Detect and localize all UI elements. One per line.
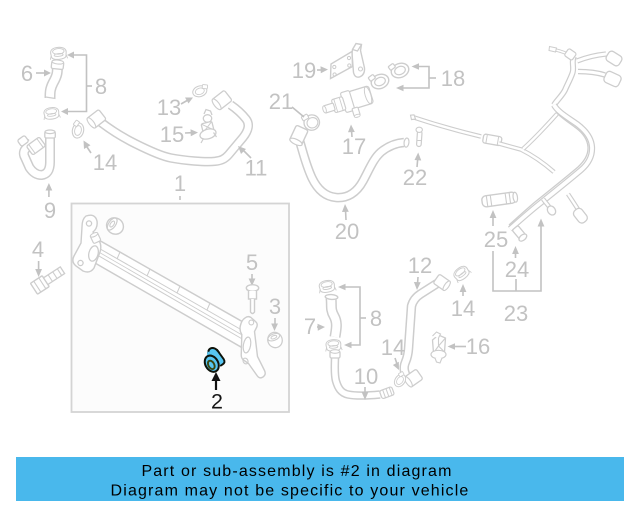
svg-text:10: 10 bbox=[354, 364, 378, 389]
svg-text:23: 23 bbox=[504, 301, 528, 326]
svg-text:7: 7 bbox=[304, 314, 316, 339]
svg-text:6: 6 bbox=[21, 61, 33, 86]
svg-text:11: 11 bbox=[245, 156, 268, 181]
svg-text:8: 8 bbox=[95, 74, 107, 99]
svg-text:16: 16 bbox=[466, 334, 490, 359]
svg-text:17: 17 bbox=[342, 134, 366, 159]
svg-text:5: 5 bbox=[246, 250, 258, 275]
svg-text:14: 14 bbox=[93, 150, 117, 175]
svg-text:21: 21 bbox=[269, 89, 293, 114]
svg-text:15: 15 bbox=[160, 122, 184, 147]
svg-text:22: 22 bbox=[403, 165, 427, 190]
svg-text:13: 13 bbox=[157, 95, 181, 120]
svg-text:Part or sub-assembly is #2 in: Part or sub-assembly is #2 in diagram bbox=[141, 463, 452, 480]
svg-text:Diagram may not be specific to: Diagram may not be specific to your vehi… bbox=[111, 483, 470, 500]
svg-text:25: 25 bbox=[484, 227, 508, 252]
svg-text:3: 3 bbox=[269, 294, 281, 319]
svg-text:12: 12 bbox=[408, 253, 432, 278]
svg-text:24: 24 bbox=[505, 257, 529, 282]
svg-text:4: 4 bbox=[32, 237, 44, 262]
svg-text:1: 1 bbox=[174, 171, 186, 196]
svg-text:20: 20 bbox=[335, 219, 359, 244]
svg-text:19: 19 bbox=[292, 58, 316, 83]
svg-text:14: 14 bbox=[451, 296, 475, 321]
svg-text:2: 2 bbox=[211, 390, 223, 414]
svg-text:14: 14 bbox=[381, 335, 405, 360]
svg-text:8: 8 bbox=[370, 306, 382, 331]
svg-text:9: 9 bbox=[44, 198, 56, 223]
svg-text:18: 18 bbox=[441, 66, 465, 91]
